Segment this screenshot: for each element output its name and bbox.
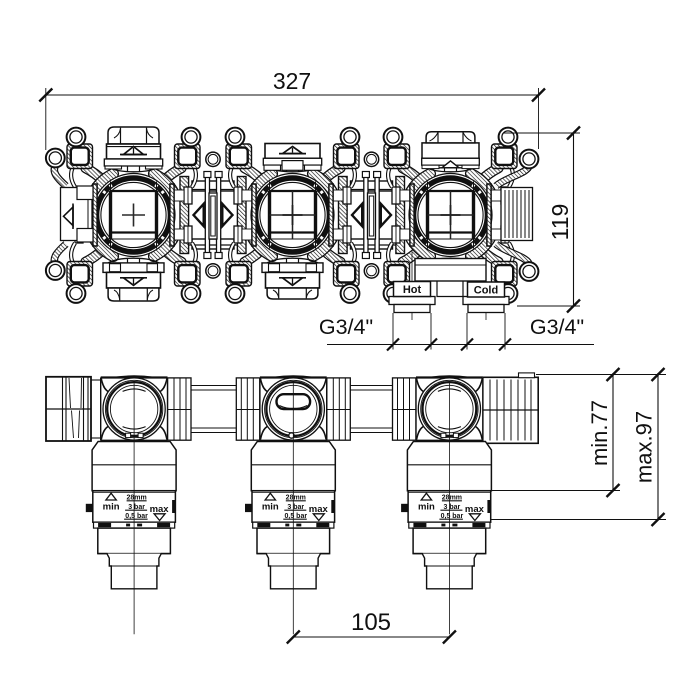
svg-text:max.97: max.97 <box>632 411 657 483</box>
svg-text:Cold: Cold <box>474 285 498 297</box>
svg-text:min: min <box>103 501 120 512</box>
svg-text:min: min <box>418 501 435 512</box>
svg-text:119: 119 <box>547 204 573 241</box>
svg-text:G3/4": G3/4" <box>530 315 584 339</box>
svg-text:min.77: min.77 <box>587 400 612 466</box>
svg-text:327: 327 <box>273 68 311 94</box>
svg-text:105: 105 <box>351 609 391 636</box>
svg-text:G3/4": G3/4" <box>319 315 373 339</box>
svg-text:Hot: Hot <box>403 284 422 296</box>
svg-text:min: min <box>262 501 279 512</box>
